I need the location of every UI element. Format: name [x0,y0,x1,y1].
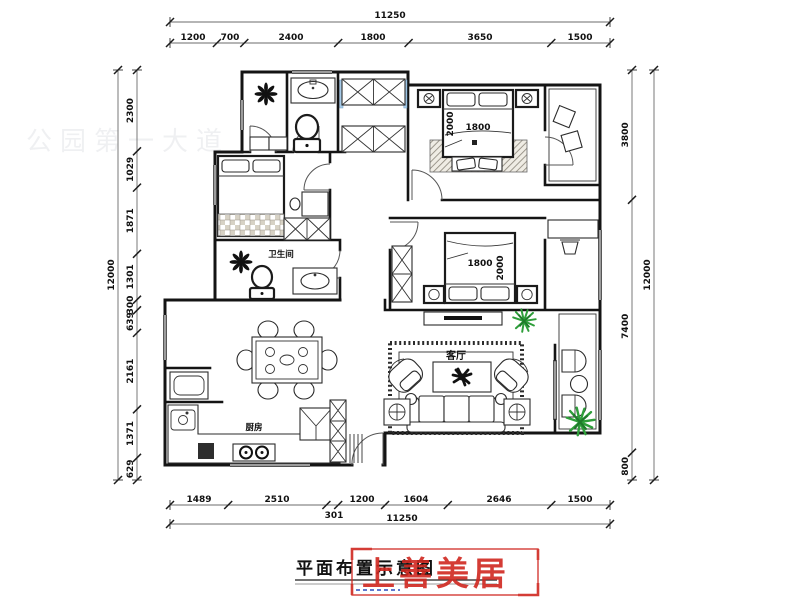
dim-label: 2161 [126,359,136,384]
tv-cabinet [424,312,502,325]
wc-room [291,78,335,152]
dining-table [252,337,322,383]
stove [233,444,275,461]
exhaust-fan-icon [230,251,253,274]
bed-width-label: 1800 [465,123,490,133]
nightstand-lamp-icon [418,90,440,107]
coffee-table [433,362,491,392]
bed-second: 1800 2000 [445,233,515,303]
toilet [250,266,274,299]
fridge [300,408,332,440]
dim-label: 1500 [567,33,592,43]
dim-label: 1800 [360,33,385,43]
dim-label: 639 [126,312,136,331]
wardrobe [392,246,412,302]
wardrobe [342,126,405,152]
tall-cabinet [330,400,346,462]
cushion [561,131,582,152]
kitchen-label: 厨房 [245,422,262,433]
dim-label: 11250 [386,514,417,524]
side-table [384,399,410,425]
dim-label: 11250 [374,11,405,21]
living-room-label: 客厅 [445,349,466,362]
dim-label: 7400 [621,314,631,339]
bed-left [218,156,284,236]
bathroom: 卫生间 [230,249,338,299]
dim-label: 1029 [126,157,136,182]
floor-plan-canvas: 公园第一大道 [0,0,800,600]
tv [444,316,482,320]
desk-small [290,192,328,216]
small-appliance [198,443,214,459]
living-room: 客厅 [382,309,535,433]
dim-chain-bottom: 1489 2510 301 1200 1604 2646 1500 11250 [166,495,614,529]
floor-plan-page: 公园第一大道 [0,0,800,600]
exhaust-fan-icon [255,83,278,106]
dim-label: 2300 [126,98,136,123]
company-logo-text: 上善美居 [362,554,510,593]
side-table [504,399,530,425]
dim-chain-right: 3800 7400 800 12000 [621,66,659,484]
toilet [294,115,320,152]
dim-label: 3650 [467,33,492,43]
dining-area [237,321,337,399]
armchair-right [490,352,534,396]
dim-label: 301 [325,511,344,521]
round-table [571,376,588,393]
walkin-closet [342,79,405,152]
balcony-top [553,106,582,152]
bed-length-label: 2000 [446,111,456,136]
dim-label: 2646 [486,495,511,505]
bed-length-label: 2000 [496,255,506,280]
dim-label: 1500 [567,495,592,505]
dim-label: 12000 [107,259,117,290]
dim-label: 12000 [643,259,653,290]
plant-icon [513,309,536,332]
bed-bench [452,157,502,171]
dim-label: 2510 [264,495,289,505]
desk-chair [560,240,580,254]
wardrobe [342,79,405,105]
dim-label: 1301 [126,264,136,289]
dim-label: 3800 [621,122,631,147]
study-nook [548,220,598,254]
dim-label: 800 [621,457,631,476]
dim-chain-top: 11250 1200 700 2400 1800 3650 1500 [166,11,614,48]
dim-label: 1604 [403,495,428,505]
dim-label: 2400 [278,33,303,43]
dim-label: 1200 [349,495,374,505]
dim-label: 1489 [186,495,211,505]
balcony-right [562,350,594,435]
nightstand-lamp-icon [517,286,537,303]
wardrobe [284,218,330,240]
bed-width-label: 1800 [467,259,492,269]
balcony-chair [562,350,586,372]
nightstand-lamp-icon [424,286,444,303]
vanity-sink [293,268,337,294]
master-bedroom: 1800 2000 [418,90,538,172]
shower-room [250,83,287,151]
dim-label: 1871 [126,208,136,233]
company-logo-stamp: 上善美居 [352,549,538,595]
dim-label: 1371 [126,421,136,446]
dim-label: 1200 [180,33,205,43]
background-watermark: 公园第一大道 [26,127,230,157]
sofa [406,394,507,433]
dim-label: 629 [126,460,136,479]
bed-master: 1800 2000 [443,90,513,157]
washing-machine [170,372,208,399]
dim-label: 300 [126,296,136,315]
cushion [553,106,575,128]
nightstand-lamp-icon [516,90,538,107]
bathroom-label: 卫生间 [268,249,294,260]
dim-label: 700 [221,33,240,43]
title-block: 平面布置示意图 上善美居 [295,549,538,595]
left-bedroom [218,156,330,240]
desk [548,220,598,238]
